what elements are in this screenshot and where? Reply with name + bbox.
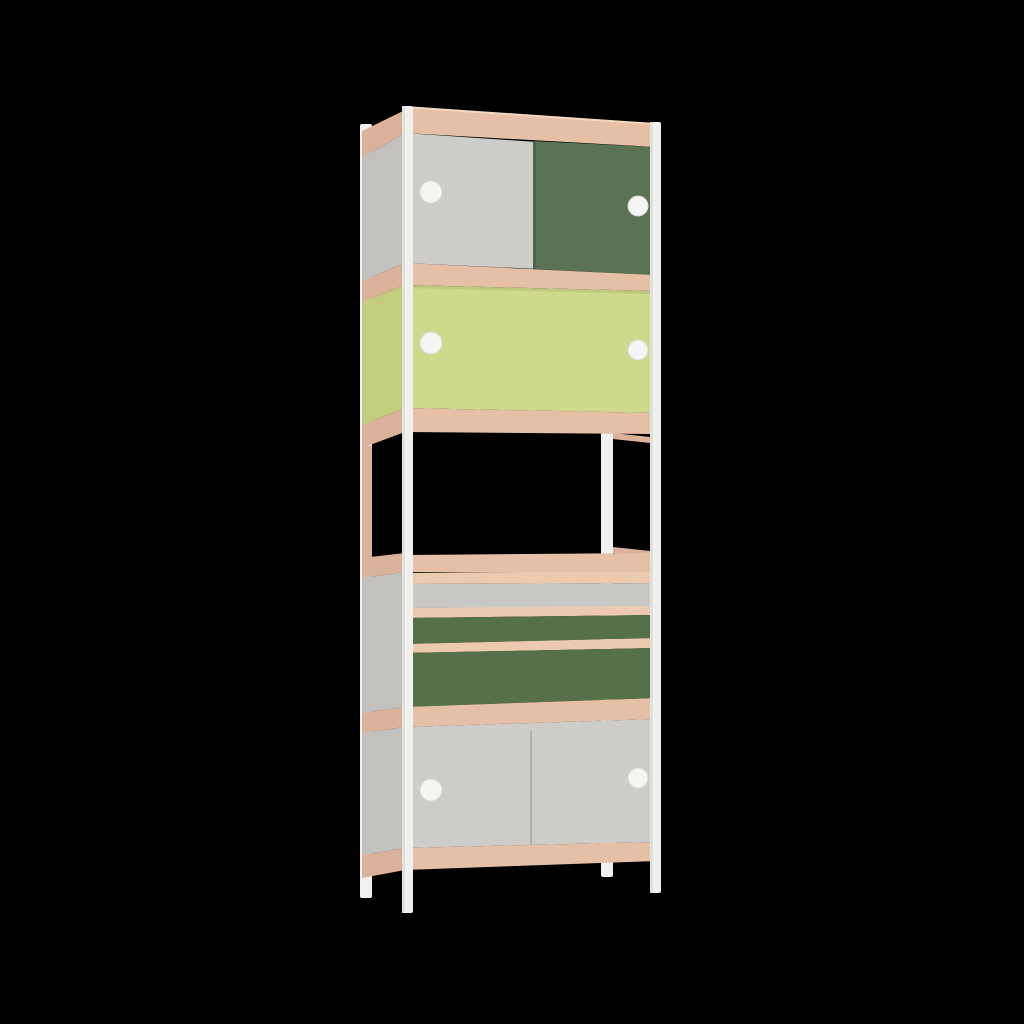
side-panel-bottom-cabinet xyxy=(362,727,405,855)
render-background xyxy=(0,0,1024,1024)
front-left-frame-post-shade xyxy=(402,106,405,913)
open-shelf-right-top-edge xyxy=(613,433,650,443)
knob-bottom-door-left xyxy=(420,779,442,801)
open-shelf-back-left-wood-strip xyxy=(362,446,372,562)
wood-band-4 xyxy=(405,553,655,574)
side-panel-top-cabinet xyxy=(362,133,405,281)
bottom-door-seam xyxy=(530,731,532,845)
knob-top-door-right xyxy=(628,196,648,216)
drawer-rail-1 xyxy=(405,572,656,584)
knob-bottom-door-right xyxy=(628,768,648,788)
top-door-seam xyxy=(533,141,536,269)
knob-lime-door-right xyxy=(628,340,648,360)
side-panel-drawer-cabinet xyxy=(362,572,405,713)
lime-sliding-doors xyxy=(405,285,655,413)
shelving-cabinet-render xyxy=(0,0,1024,1024)
side-panel-lime-cabinet xyxy=(362,285,405,425)
knob-top-door-left xyxy=(420,181,442,203)
front-right-frame-post-shade xyxy=(650,122,653,893)
drawer-front-green-large xyxy=(405,648,656,707)
knob-lime-door-left xyxy=(420,332,442,354)
drawer-front-gray xyxy=(405,583,656,608)
